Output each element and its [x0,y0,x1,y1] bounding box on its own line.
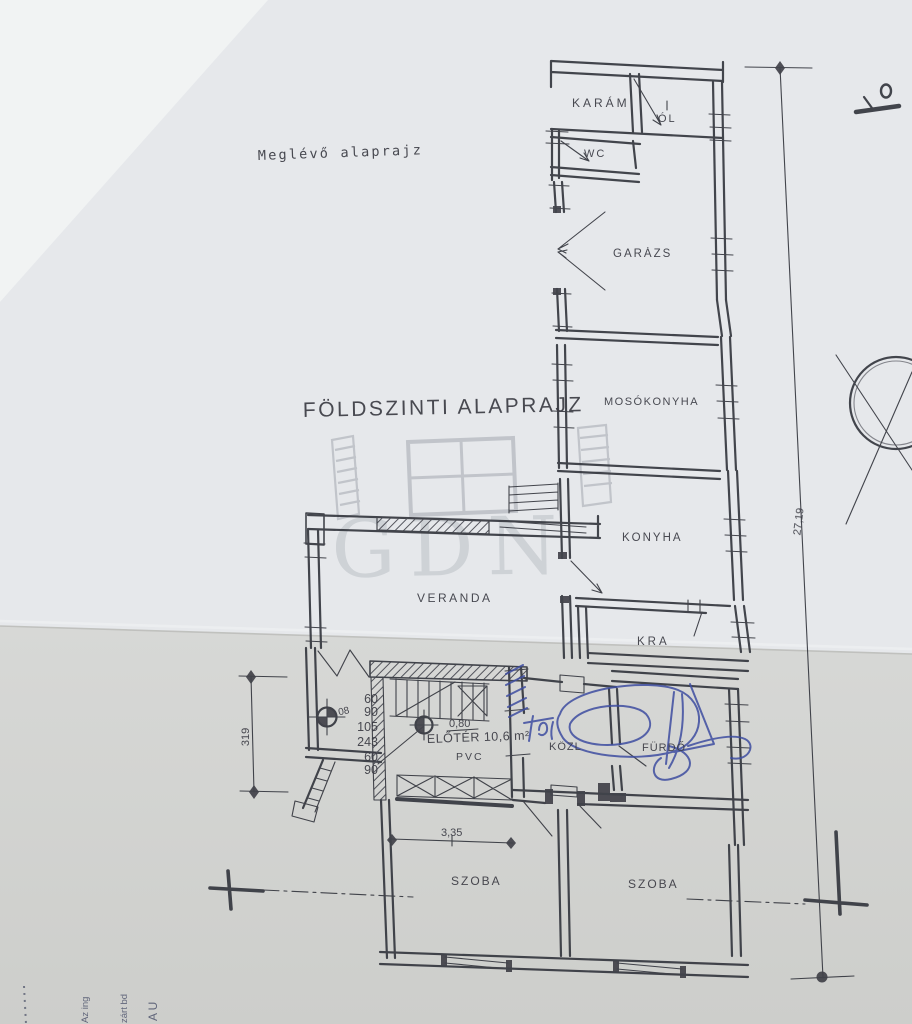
room-label-szoba-left: SZOBA [451,874,502,888]
watermark-text: GDN [331,499,573,596]
room-label-szoba-right: SZOBA [628,877,679,891]
scanned-floor-plan-photo: GDN [0,0,912,1024]
room-label-veranda: VERANDA [417,591,493,605]
room-label-garazs: GARÁZS [613,247,672,260]
room-label-kozl: KÖZL [549,741,582,753]
room-label-wc: WC [584,148,606,160]
room-label-konyha: KONYHA [622,532,683,544]
room-label-pvc: PVC [456,751,484,763]
stair-dim-1: 60 [364,692,378,706]
room-label-mosokonyha: MOSÓKONYHA [604,395,699,408]
room-label-karam: KARÁM [572,95,630,110]
room-label-kamra: KRA [637,636,670,648]
dimension-left-vertical: 319 [240,728,252,746]
stair-dim-2: 90 [364,705,378,719]
dimension-door-width: 0,80 [449,718,470,730]
floor-plan-svg: GDN [0,0,912,1024]
stair-dim-3: 105 [357,720,378,734]
stair-dim-6: 90 [364,763,378,777]
stair-dim-4: 243 [357,735,378,749]
stair-dim-5: 60 [364,750,378,764]
edge-note-2: zárt bd [119,994,130,1023]
dimension-szoba-width: 3,35 [441,827,462,839]
room-label-furdo: FÜRDŐ [642,740,686,754]
edge-note-1: Az ing [80,997,91,1023]
room-label-ol: ÓL [658,112,677,125]
edge-note-3: A U [146,1002,160,1021]
